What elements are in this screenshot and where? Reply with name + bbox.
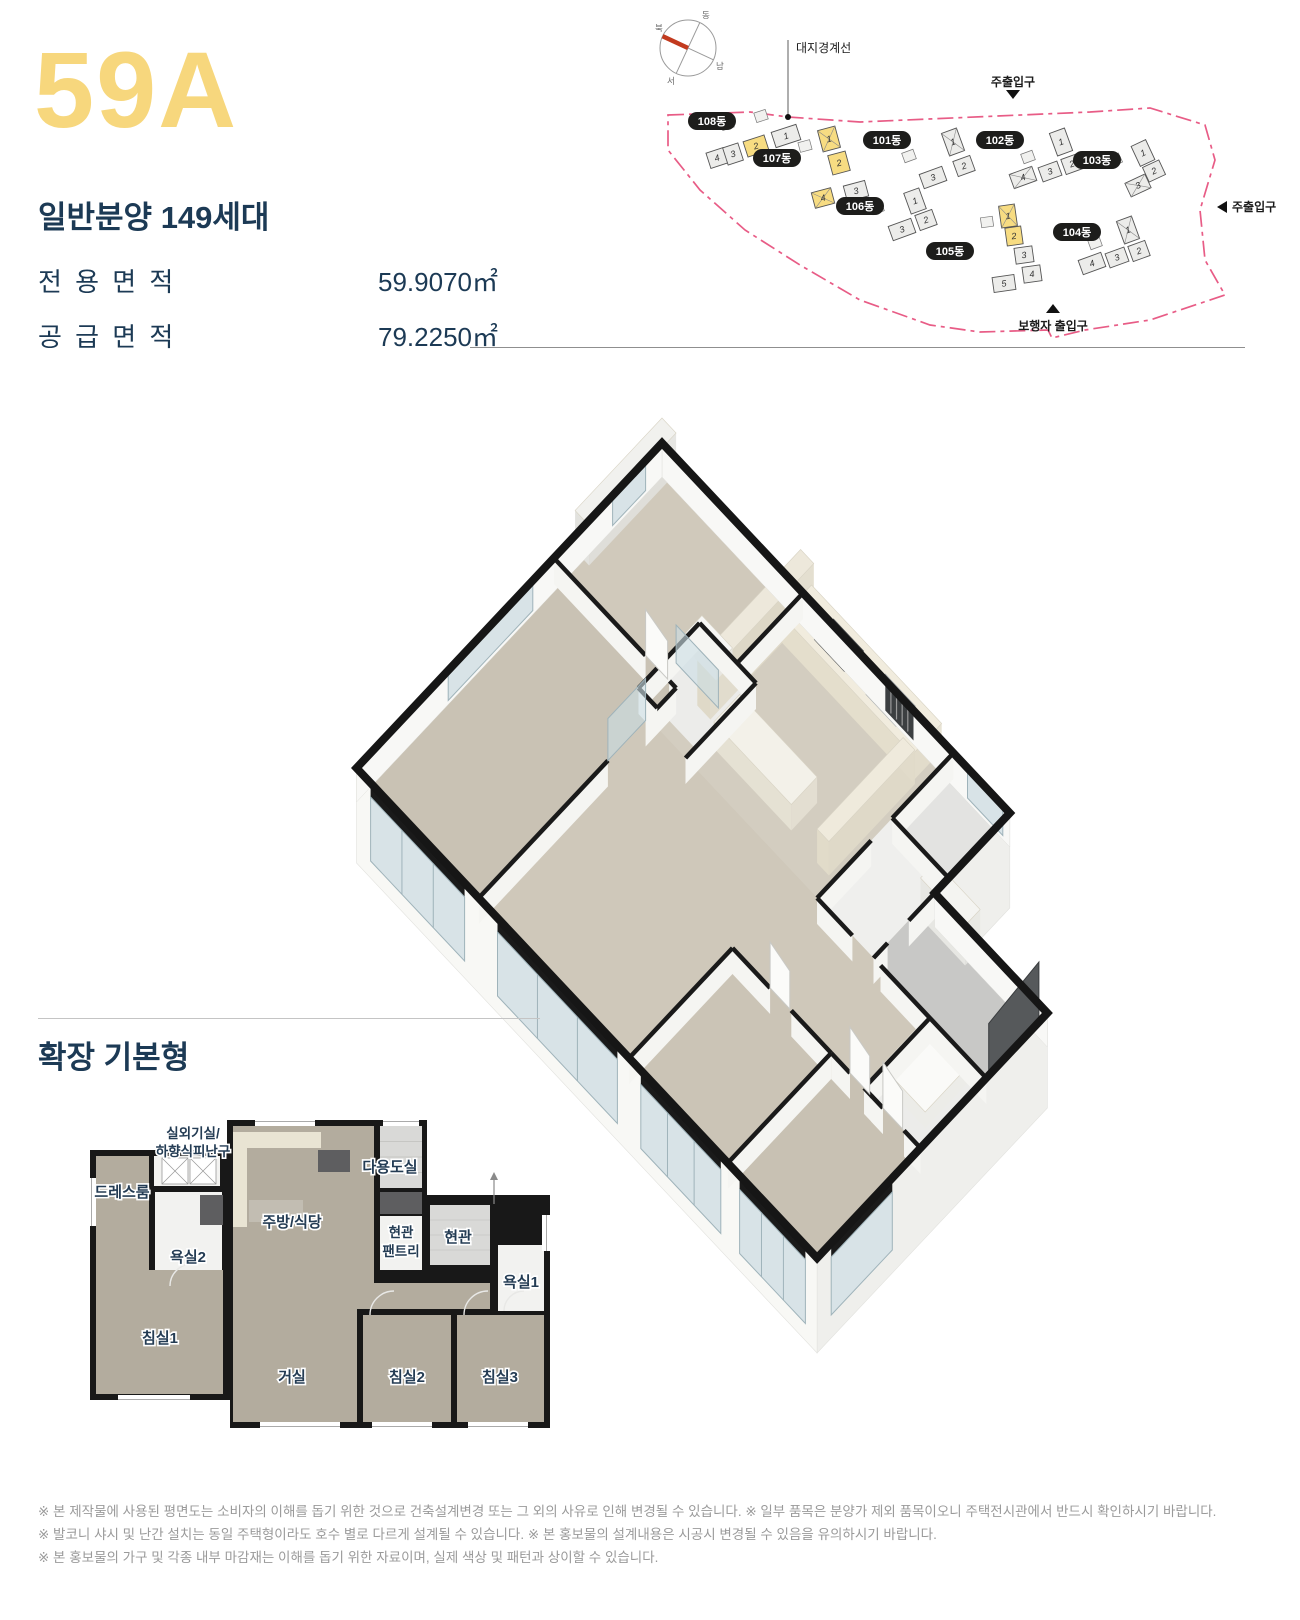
disclaimer-block: ※ 본 제작물에 사용된 평면도는 소비자의 이해를 돕기 위한 것으로 건축설…: [38, 1500, 1268, 1569]
svg-text:101동: 101동: [873, 134, 901, 147]
site-building-103동: 123103동: [1073, 140, 1166, 197]
supply-area-label: 공 급 면 적: [38, 317, 176, 354]
disclaimer-line: ※ 본 제작물에 사용된 평면도는 소비자의 이해를 돕기 위한 것으로 건축설…: [38, 1500, 1268, 1523]
disclaimer-line: ※ 본 홍보물의 가구 및 각종 내부 마감재는 이해를 돕기 위한 자료이며,…: [38, 1546, 1268, 1569]
room-label-entry-pantry-2: 팬트리: [382, 1244, 419, 1259]
site-building-101동: 123101동: [863, 128, 975, 189]
room-label-utility: 다용도실: [362, 1159, 417, 1176]
site-boundary-label: 대지경계선: [796, 41, 851, 55]
room-label-bedroom2: 침실2: [389, 1369, 425, 1386]
section-title: 확장 기본형: [38, 1032, 189, 1077]
section-divider: [38, 1018, 540, 1019]
supply-area-value: 79.2250㎡: [328, 317, 498, 354]
compass-north-label: 북: [655, 23, 663, 33]
room-label-bedroom3: 침실3: [482, 1369, 518, 1386]
main-entrance-right-label: 주출입구: [1232, 199, 1276, 214]
exclusive-area-label: 전 용 면 적: [38, 262, 176, 299]
svg-text:103동: 103동: [1083, 154, 1111, 167]
compass-west-label: 서: [667, 76, 675, 86]
room-label-escape-hatch: 하향식피난구: [156, 1143, 231, 1159]
exclusive-area-value: 59.9070㎡: [328, 262, 498, 299]
sale-info: 일반분양 149세대: [38, 192, 269, 237]
pedestrian-entrance-label: 보행자 출입구: [1018, 318, 1088, 333]
unit-type-code: 59A: [34, 36, 238, 144]
site-building-104동: 1234104동: [1053, 216, 1150, 275]
site-building-105동: 12345105동: [926, 204, 1042, 292]
svg-text:105동: 105동: [936, 245, 964, 258]
disclaimer-line: ※ 발코니 샤시 및 난간 설치는 동일 주택형이라도 호수 별로 다르게 설계…: [38, 1523, 1268, 1546]
site-building-107동: 1234107동: [753, 126, 869, 208]
room-label-bath1: 욕실1: [503, 1274, 539, 1291]
room-label-entry-pantry-1: 현관: [389, 1224, 414, 1240]
compass-east-label: 동: [702, 10, 710, 20]
site-building-102동: 1234102동: [976, 128, 1083, 189]
svg-text:104동: 104동: [1063, 226, 1091, 239]
room-label-entrance: 현관: [444, 1229, 472, 1246]
exclusive-area-row: 전 용 면 적 59.9070㎡: [38, 262, 468, 296]
floorplan-2d: 실외기실/ 하향식피난구 드레스룸 욕실2 주방/식당 다용도실 현관 팬트리 …: [70, 1080, 570, 1440]
brochure-page: 59A 일반분양 149세대 전 용 면 적 59.9070㎡ 공 급 면 적 …: [0, 0, 1300, 1620]
svg-text:102동: 102동: [986, 134, 1014, 147]
svg-text:107동: 107동: [763, 152, 791, 165]
room-label-living: 거실: [278, 1369, 306, 1386]
room-label-bath2: 욕실2: [170, 1249, 206, 1266]
svg-text:108동: 108동: [698, 115, 726, 128]
main-entrance-top-label: 주출입구: [991, 74, 1035, 89]
room-label-bedroom1: 침실1: [142, 1330, 178, 1347]
room-label-outdoor-unit: 실외기실/: [166, 1125, 220, 1141]
room-label-dressroom: 드레스룸: [94, 1184, 149, 1201]
svg-text:106동: 106동: [846, 200, 874, 213]
supply-area-row: 공 급 면 적 79.2250㎡: [38, 317, 468, 351]
site-plan: 4321108동1234107동123101동1234102동123103동12…: [615, 0, 1300, 352]
compass-south-label: 남: [716, 61, 724, 71]
room-label-kitchen: 주방/식당: [262, 1213, 322, 1231]
